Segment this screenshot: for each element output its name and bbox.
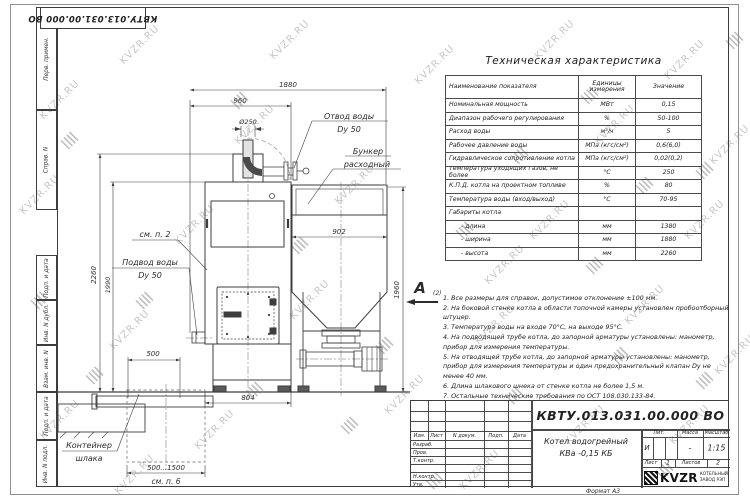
bunker-label: Бункер bbox=[353, 147, 383, 156]
dim-label-1960: 1960 bbox=[393, 281, 401, 299]
dim-label-500: 500 bbox=[146, 350, 160, 358]
dim-label-1990: 1990 bbox=[104, 277, 112, 294]
dim-label-2260: 2260 bbox=[90, 266, 98, 284]
boiler-pedestal bbox=[213, 344, 291, 392]
bunker-frame bbox=[303, 292, 380, 386]
door-handle bbox=[224, 312, 241, 317]
view-a-marker: А (2) bbox=[406, 279, 442, 305]
bunker-label-2: расходный bbox=[343, 160, 390, 169]
boiler-front-view bbox=[192, 138, 309, 392]
panel-clamps bbox=[207, 219, 288, 228]
see-note-2-label: см. п. 2 bbox=[140, 230, 171, 239]
dim-label-902: 902 bbox=[332, 228, 346, 236]
water-inlet-fitting bbox=[192, 332, 205, 343]
slag-container bbox=[58, 404, 145, 432]
container-label-2: шлака bbox=[75, 454, 102, 463]
dim-label-804: 804 bbox=[241, 394, 254, 402]
centerlines bbox=[166, 128, 388, 470]
outlet-dn-label: Dy 50 bbox=[337, 125, 361, 134]
view-a-letter: А bbox=[413, 279, 426, 297]
view-a-sub: (2) bbox=[433, 290, 442, 297]
container-label: Контейнер bbox=[66, 441, 112, 450]
fuel-bunker bbox=[292, 185, 387, 392]
boiler-drawing: 1880 960 Ø250 902 1960 2260 1990 500 804… bbox=[0, 0, 750, 500]
water-outlet-fitting bbox=[263, 162, 309, 180]
see-note-6-label: см. п. 6 bbox=[152, 477, 181, 486]
sight-glass bbox=[270, 194, 275, 199]
drawing-sheet: Перв. примен. Справ. N Подп. и дата Инв.… bbox=[0, 0, 750, 500]
dim-label-1880: 1880 bbox=[279, 81, 297, 89]
upper-panel bbox=[211, 201, 284, 247]
view-a-arrow bbox=[406, 299, 415, 305]
outlet-label: Отвод воды bbox=[324, 112, 374, 121]
inlet-dn-label: Dy 50 bbox=[138, 271, 162, 280]
dim-label-250: Ø250 bbox=[238, 118, 257, 126]
dim-label-500-1500: 500...1500 bbox=[147, 464, 185, 472]
dim-label-960: 960 bbox=[233, 97, 247, 105]
inlet-label: Подвод воды bbox=[122, 258, 178, 267]
